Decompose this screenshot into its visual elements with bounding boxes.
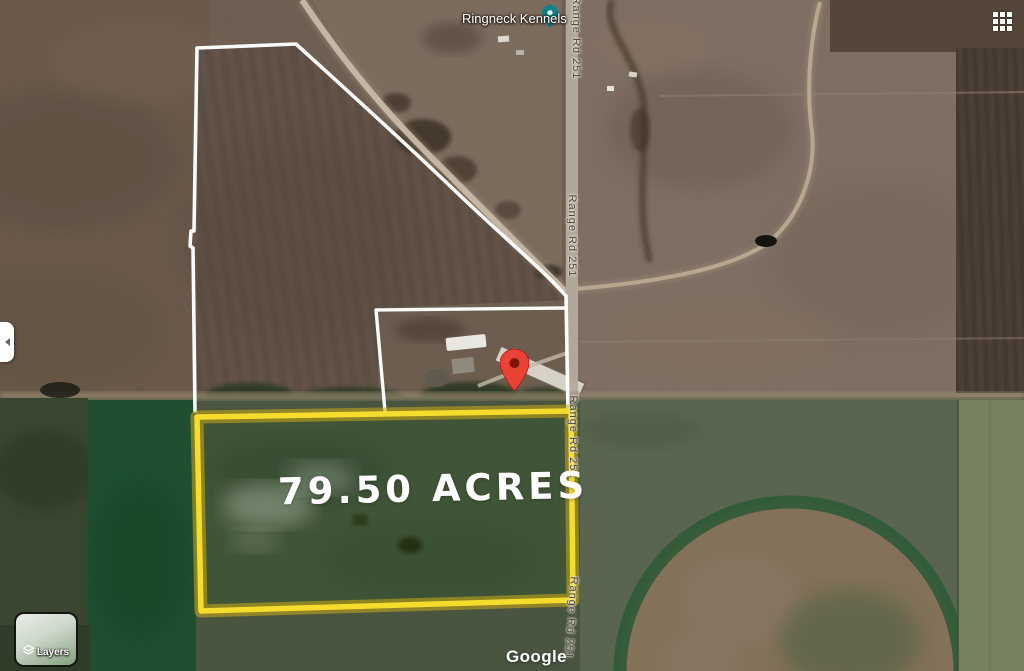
layers-button[interactable]: Layers <box>14 612 78 667</box>
acreage-annotation: 79.50 ACRES <box>278 466 509 514</box>
collapse-side-panel-button[interactable] <box>0 322 14 362</box>
apps-grid-icon[interactable] <box>993 12 1012 31</box>
satellite-imagery <box>0 0 1024 671</box>
location-pin-icon[interactable] <box>500 349 529 391</box>
road-label-range-rd-251-top: Range Rd 251 <box>570 0 582 79</box>
map-canvas[interactable]: Ringneck Kennels Range Rd 251 Range Rd 2… <box>0 0 1024 671</box>
google-attribution-logo[interactable]: Google <box>506 647 567 667</box>
layers-button-label: Layers <box>37 647 69 658</box>
road-label-range-rd-251-mid: Range Rd 251 <box>566 195 578 278</box>
chevron-left-icon <box>5 338 10 346</box>
poi-label[interactable]: Ringneck Kennels <box>462 11 542 26</box>
layers-icon <box>23 643 34 661</box>
